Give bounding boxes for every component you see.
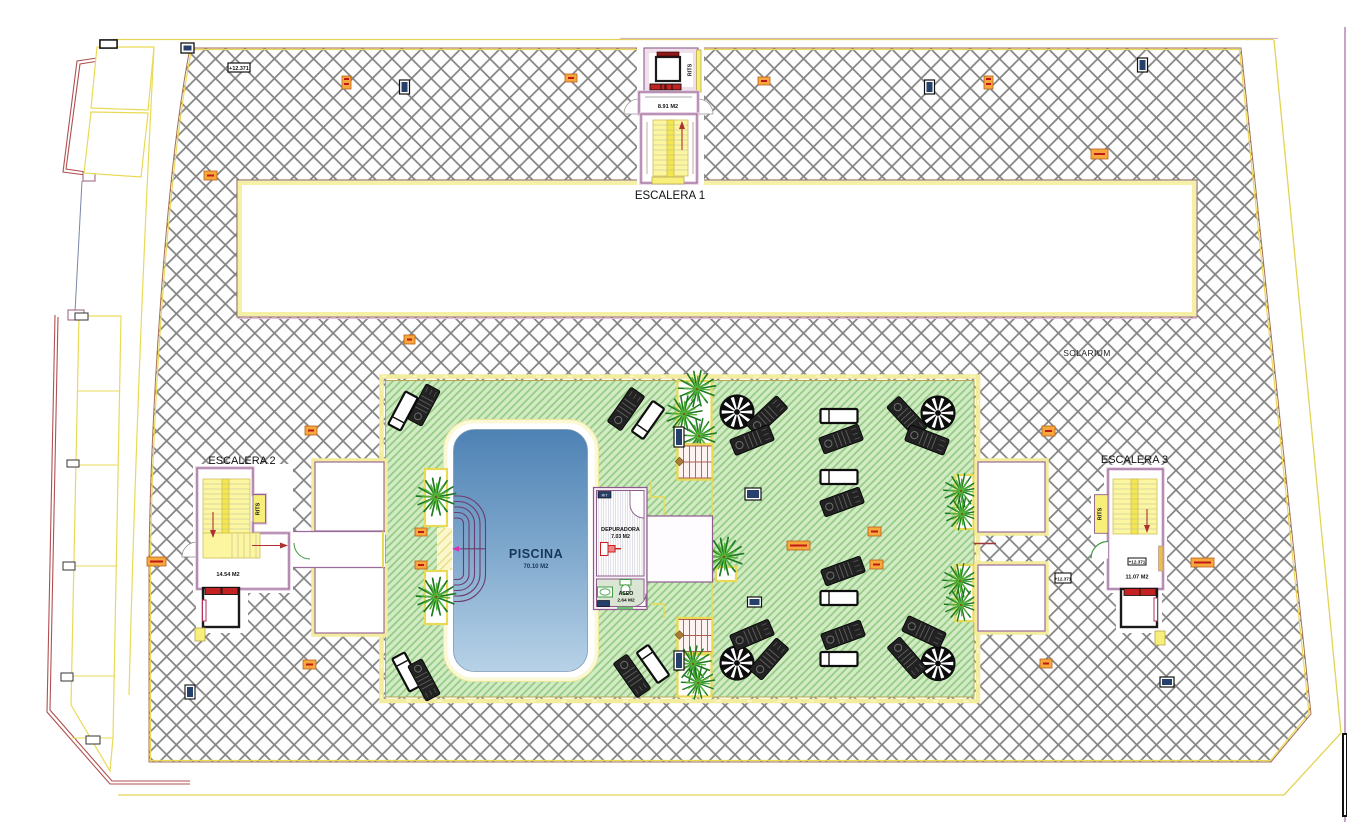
svg-text:14.54 M2: 14.54 M2: [216, 572, 239, 578]
svg-text:7.03 M2: 7.03 M2: [611, 534, 630, 540]
svg-text:+12.371: +12.371: [1055, 577, 1072, 582]
svg-text:PISCINA: PISCINA: [509, 547, 563, 561]
svg-text:SOLARIUM: SOLARIUM: [1063, 348, 1111, 358]
svg-text:11.07 M2: 11.07 M2: [1125, 575, 1148, 581]
svg-text:RITS: RITS: [256, 502, 262, 515]
svg-text:ESCALERA 3: ESCALERA 3: [1101, 454, 1168, 466]
svg-text:70.10 M2: 70.10 M2: [523, 564, 549, 570]
svg-text:ESCALERA 2: ESCALERA 2: [208, 455, 275, 467]
svg-text:ESCALERA 1: ESCALERA 1: [635, 190, 705, 202]
svg-text:RITS: RITS: [1098, 507, 1104, 520]
svg-text:RIT: RIT: [602, 493, 609, 497]
svg-text:+12.371: +12.371: [229, 66, 249, 72]
svg-text:8.91 M2: 8.91 M2: [658, 104, 678, 110]
svg-text:RITS: RITS: [688, 63, 694, 76]
svg-text:ASEO: ASEO: [619, 591, 634, 597]
svg-text:+12.371: +12.371: [1129, 560, 1146, 565]
svg-text:DEPURADORA: DEPURADORA: [601, 527, 640, 533]
svg-text:2.64 M2: 2.64 M2: [617, 598, 635, 604]
